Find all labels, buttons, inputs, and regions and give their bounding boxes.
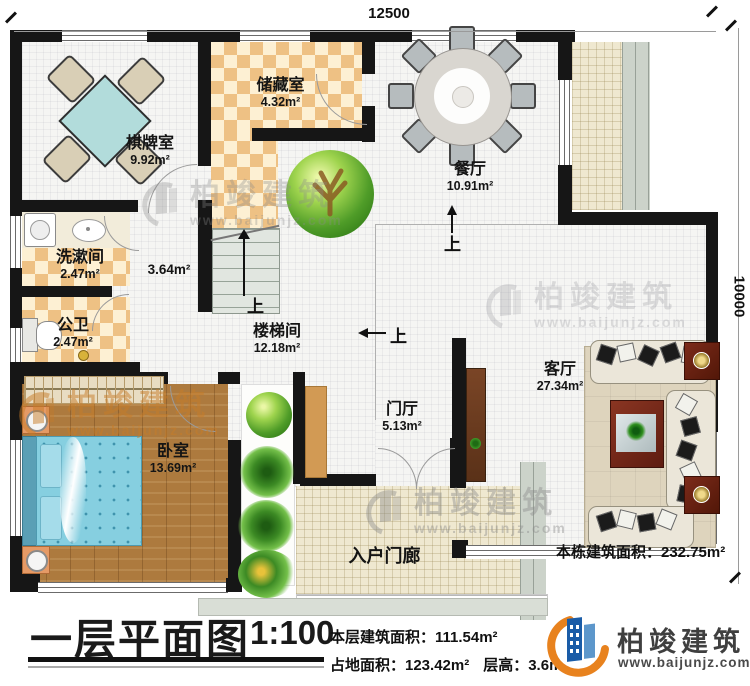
plant-icon	[240, 446, 294, 498]
dimension-label-height: 10000	[731, 270, 748, 324]
step-edge-line	[375, 224, 558, 225]
room-label-dining: 餐厅 10.91m²	[425, 160, 515, 194]
entry-porch-floor	[296, 486, 520, 594]
wardrobe	[24, 376, 164, 404]
room-label-living-room: 客厅 27.34m²	[505, 360, 615, 394]
wall	[293, 372, 305, 484]
room-label-corridor: 3.64m²	[138, 262, 200, 278]
side-table-medallion	[693, 352, 710, 369]
tree-icon	[286, 150, 374, 238]
up-label: 上	[247, 292, 264, 317]
plant-icon	[246, 392, 292, 438]
room-area: 4.32m²	[228, 95, 333, 110]
storage-floor-strip	[211, 128, 278, 228]
lamp-icon	[26, 550, 48, 572]
up-arrow-line	[368, 332, 386, 334]
plant-icon	[238, 550, 296, 598]
room-label-entry-porch: 入户门廊	[322, 546, 447, 568]
shoe-cabinet	[305, 386, 327, 478]
chair	[510, 83, 536, 109]
room-label-chess-room: 棋牌室 9.92m²	[100, 134, 200, 168]
room-label-bedroom: 卧室 13.69m²	[128, 442, 218, 476]
brand-site: www.baijunjz.com	[618, 655, 750, 670]
room-area: 12.18m²	[222, 341, 332, 356]
sofa-pillow	[616, 342, 636, 362]
brand-name: 柏竣建筑	[617, 620, 745, 659]
floor-area-note: 本层建筑面积：111.54m²	[330, 626, 498, 647]
room-name: 洗漱间	[30, 248, 130, 267]
wall	[10, 200, 138, 212]
lamp-icon	[26, 410, 48, 432]
floor-plan: 柏竣建筑www.baijunjz.com 柏竣建筑www.baijunjz.co…	[0, 0, 750, 686]
up-label: 上	[444, 230, 461, 255]
window	[10, 328, 22, 366]
wall	[558, 30, 572, 80]
dimension-tick	[725, 19, 737, 31]
up-arrow-icon	[358, 328, 368, 338]
cabinet-plant-icon	[470, 438, 481, 449]
sink-drain	[86, 227, 90, 231]
room-name: 餐厅	[425, 160, 515, 179]
stair-arrow	[243, 238, 245, 296]
room-area: 9.92m²	[100, 153, 200, 168]
side-terrace-floor	[572, 42, 622, 210]
room-name: 客厅	[505, 360, 615, 379]
window	[10, 216, 22, 268]
room-name: 楼梯间	[222, 322, 332, 341]
title-underline	[28, 657, 324, 662]
wall	[558, 212, 718, 225]
staircase	[212, 228, 280, 314]
tv-cabinet	[466, 368, 486, 482]
wall	[252, 128, 375, 141]
stair-arrow-head	[238, 229, 250, 239]
dimension-label-width: 12500	[344, 5, 434, 22]
ground-area: 占地面积：123.42m²	[330, 657, 469, 674]
up-label: 上	[390, 322, 407, 347]
brand-logo-icon	[542, 613, 612, 683]
pillow	[40, 496, 62, 540]
pillow	[40, 444, 62, 488]
room-label-entry-hall: 门厅 5.13m²	[352, 400, 452, 434]
table-plant-icon	[626, 421, 646, 441]
dimension-line-top	[14, 31, 716, 32]
room-area: 13.69m²	[128, 461, 218, 476]
up-arrow-icon	[447, 205, 457, 215]
room-label-stairwell: 楼梯间 12.18m²	[222, 322, 332, 356]
dimension-tick	[729, 571, 741, 583]
side-table-medallion	[693, 486, 710, 503]
title-underline-thin	[28, 666, 324, 668]
room-area: 27.34m²	[505, 379, 615, 394]
wall	[10, 286, 112, 297]
dimension-tick	[706, 5, 718, 17]
room-area: 5.13m²	[352, 419, 452, 434]
lazy-susan	[452, 86, 474, 108]
room-area: 10.91m²	[425, 179, 515, 194]
side-terrace-deck	[622, 42, 650, 210]
total-building-area-note: 本栋建筑面积：232.75m²	[556, 541, 725, 562]
room-name: 棋牌室	[100, 134, 200, 153]
window	[38, 582, 228, 594]
room-area: 3.64m²	[138, 262, 200, 278]
room-name: 入户门廊	[322, 546, 447, 568]
room-name: 储藏室	[228, 76, 333, 95]
wall	[452, 338, 466, 440]
ground-area-note: 占地面积：123.42m²层高：3.6m	[330, 654, 562, 675]
room-area: 2.47m²	[30, 267, 130, 282]
floor-drain-icon	[78, 350, 89, 361]
room-label-washroom: 洗漱间 2.47m²	[30, 248, 130, 282]
chair	[388, 83, 414, 109]
room-label-storage: 储藏室 4.32m²	[228, 76, 333, 110]
dimension-tick	[5, 11, 17, 23]
sliding-door	[559, 80, 571, 165]
plan-scale: 1:100	[250, 614, 334, 652]
wall	[218, 372, 240, 384]
window	[10, 440, 22, 536]
step-edge-line	[375, 224, 376, 420]
sofa-pillow	[637, 513, 657, 533]
room-label-toilet: 公卫 2.47m²	[23, 316, 123, 350]
room-area: 2.47m²	[23, 335, 123, 350]
washing-machine-drum	[30, 220, 50, 240]
room-name: 卧室	[128, 442, 218, 461]
blanket-fold	[60, 437, 86, 543]
room-name: 公卫	[23, 316, 123, 335]
tree-branches-icon	[286, 150, 374, 238]
plant-icon	[238, 500, 294, 552]
wall	[362, 30, 375, 74]
room-name: 门厅	[352, 400, 452, 419]
wall	[198, 200, 212, 312]
